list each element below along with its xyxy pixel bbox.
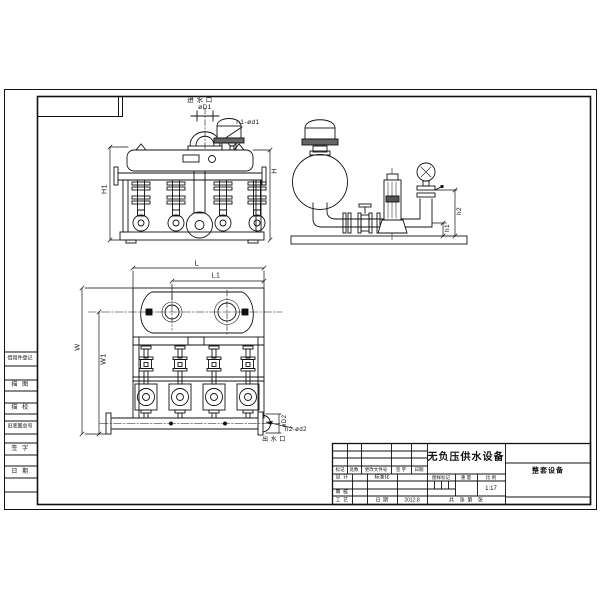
vertical-pump xyxy=(378,168,407,240)
tb-date-col: 日期 xyxy=(415,468,424,473)
pump-unit-4 xyxy=(237,346,259,418)
tb-sheet-label: 共 张 第 张 xyxy=(449,498,483,503)
pump-column-3 xyxy=(214,180,232,231)
margin-borrowed-parts: 借用件登记 xyxy=(7,357,32,362)
pump-column-4 xyxy=(248,180,266,231)
tb-weight-label: 重 量 xyxy=(461,475,471,480)
tb-standardization: 标准化 xyxy=(374,475,389,480)
dim-W1-label: W1 xyxy=(101,353,108,365)
margin-date: 日 期 xyxy=(11,469,28,475)
base-frame-front xyxy=(120,180,264,243)
dim-W-label: W xyxy=(73,343,81,351)
inlet-bolts-label: n1-ød1 xyxy=(236,120,260,127)
margin-signature: 签 字 xyxy=(11,446,28,452)
center-manifold xyxy=(187,171,213,238)
pump-column-1 xyxy=(132,180,150,231)
tb-mark-label: 图样标记 xyxy=(432,475,450,480)
pump-column-2 xyxy=(167,180,185,231)
margin-tracing-check: 描 校 xyxy=(11,405,28,411)
nameplate xyxy=(183,155,199,162)
pump-unit-3 xyxy=(203,346,225,418)
dim-L1 xyxy=(170,279,266,300)
cad-sheet: 进 水 口 øD1 n1-ød1 H1 H h2 h1 L L1 W W1 øD… xyxy=(0,0,600,600)
tb-scale-label: 比 例 xyxy=(486,475,496,480)
tb-date-label: 日 期 xyxy=(376,498,389,503)
tb-date-value: 2012.8 xyxy=(404,498,419,503)
margin-old-master-no: 旧底图总号 xyxy=(7,425,32,430)
outlet-bolts-label: n2-ød2 xyxy=(285,427,307,433)
drawing-canvas xyxy=(0,0,600,600)
dim-L xyxy=(131,266,266,288)
level-gauge-icon xyxy=(209,156,216,163)
dim-H1 xyxy=(108,145,128,242)
drawing-title: 无负压供水设备 xyxy=(428,453,505,463)
drawing-frame xyxy=(5,90,597,510)
inlet-dia-label: øD1 xyxy=(198,105,212,112)
outlet-label: 出 水 口 xyxy=(262,437,286,443)
dim-L1-label: L1 xyxy=(212,273,221,280)
tb-count: 处数 xyxy=(350,468,359,473)
product-name: 整套设备 xyxy=(532,468,564,475)
dim-h2-label: h2 xyxy=(457,207,464,215)
air-dome xyxy=(302,120,338,145)
pump-unit-1 xyxy=(135,346,157,418)
riser-check-valve xyxy=(417,163,443,227)
front-view xyxy=(108,108,272,243)
tb-check: 审 核 xyxy=(336,490,349,495)
pump-unit-2 xyxy=(169,346,191,418)
dim-h1-label: h1 xyxy=(445,224,452,232)
tank-plan xyxy=(141,292,254,333)
discharge-header xyxy=(100,412,280,435)
dim-H-label: H xyxy=(272,168,279,174)
dim-L-label: L xyxy=(195,259,200,267)
tb-process: 工 艺 xyxy=(336,498,349,503)
side-view xyxy=(291,120,467,244)
pressure-tank xyxy=(293,155,348,210)
tb-mark: 标记 xyxy=(336,468,345,473)
outlet-dia-label: øD2 xyxy=(282,415,288,428)
tb-sign: 签 字 xyxy=(396,468,406,473)
base-plate xyxy=(291,236,467,244)
margin-tracing: 描 图 xyxy=(11,382,28,388)
plan-view xyxy=(80,266,293,436)
tb-scale-value: 1:17 xyxy=(485,486,497,492)
tb-design: 设 计 xyxy=(336,475,349,480)
dim-W1 xyxy=(97,310,101,436)
tb-change-doc: 更改文件号 xyxy=(365,468,388,473)
dim-H1-label: H1 xyxy=(102,184,109,194)
